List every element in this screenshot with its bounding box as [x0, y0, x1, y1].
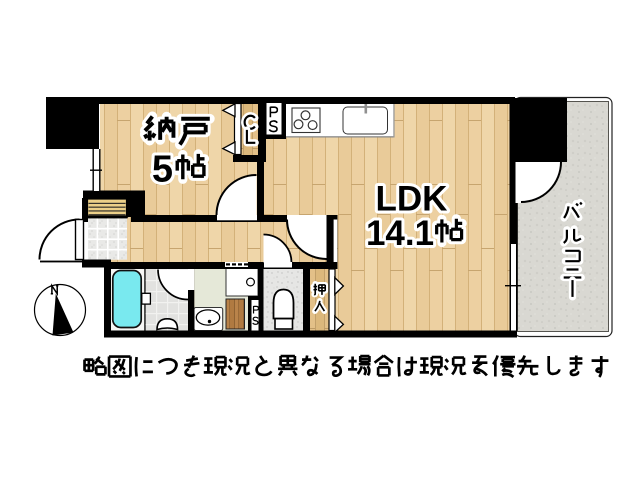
svg-text:LDK: LDK [376, 180, 448, 219]
svg-text:5: 5 [152, 149, 173, 191]
svg-text:14.1: 14.1 [366, 214, 434, 253]
